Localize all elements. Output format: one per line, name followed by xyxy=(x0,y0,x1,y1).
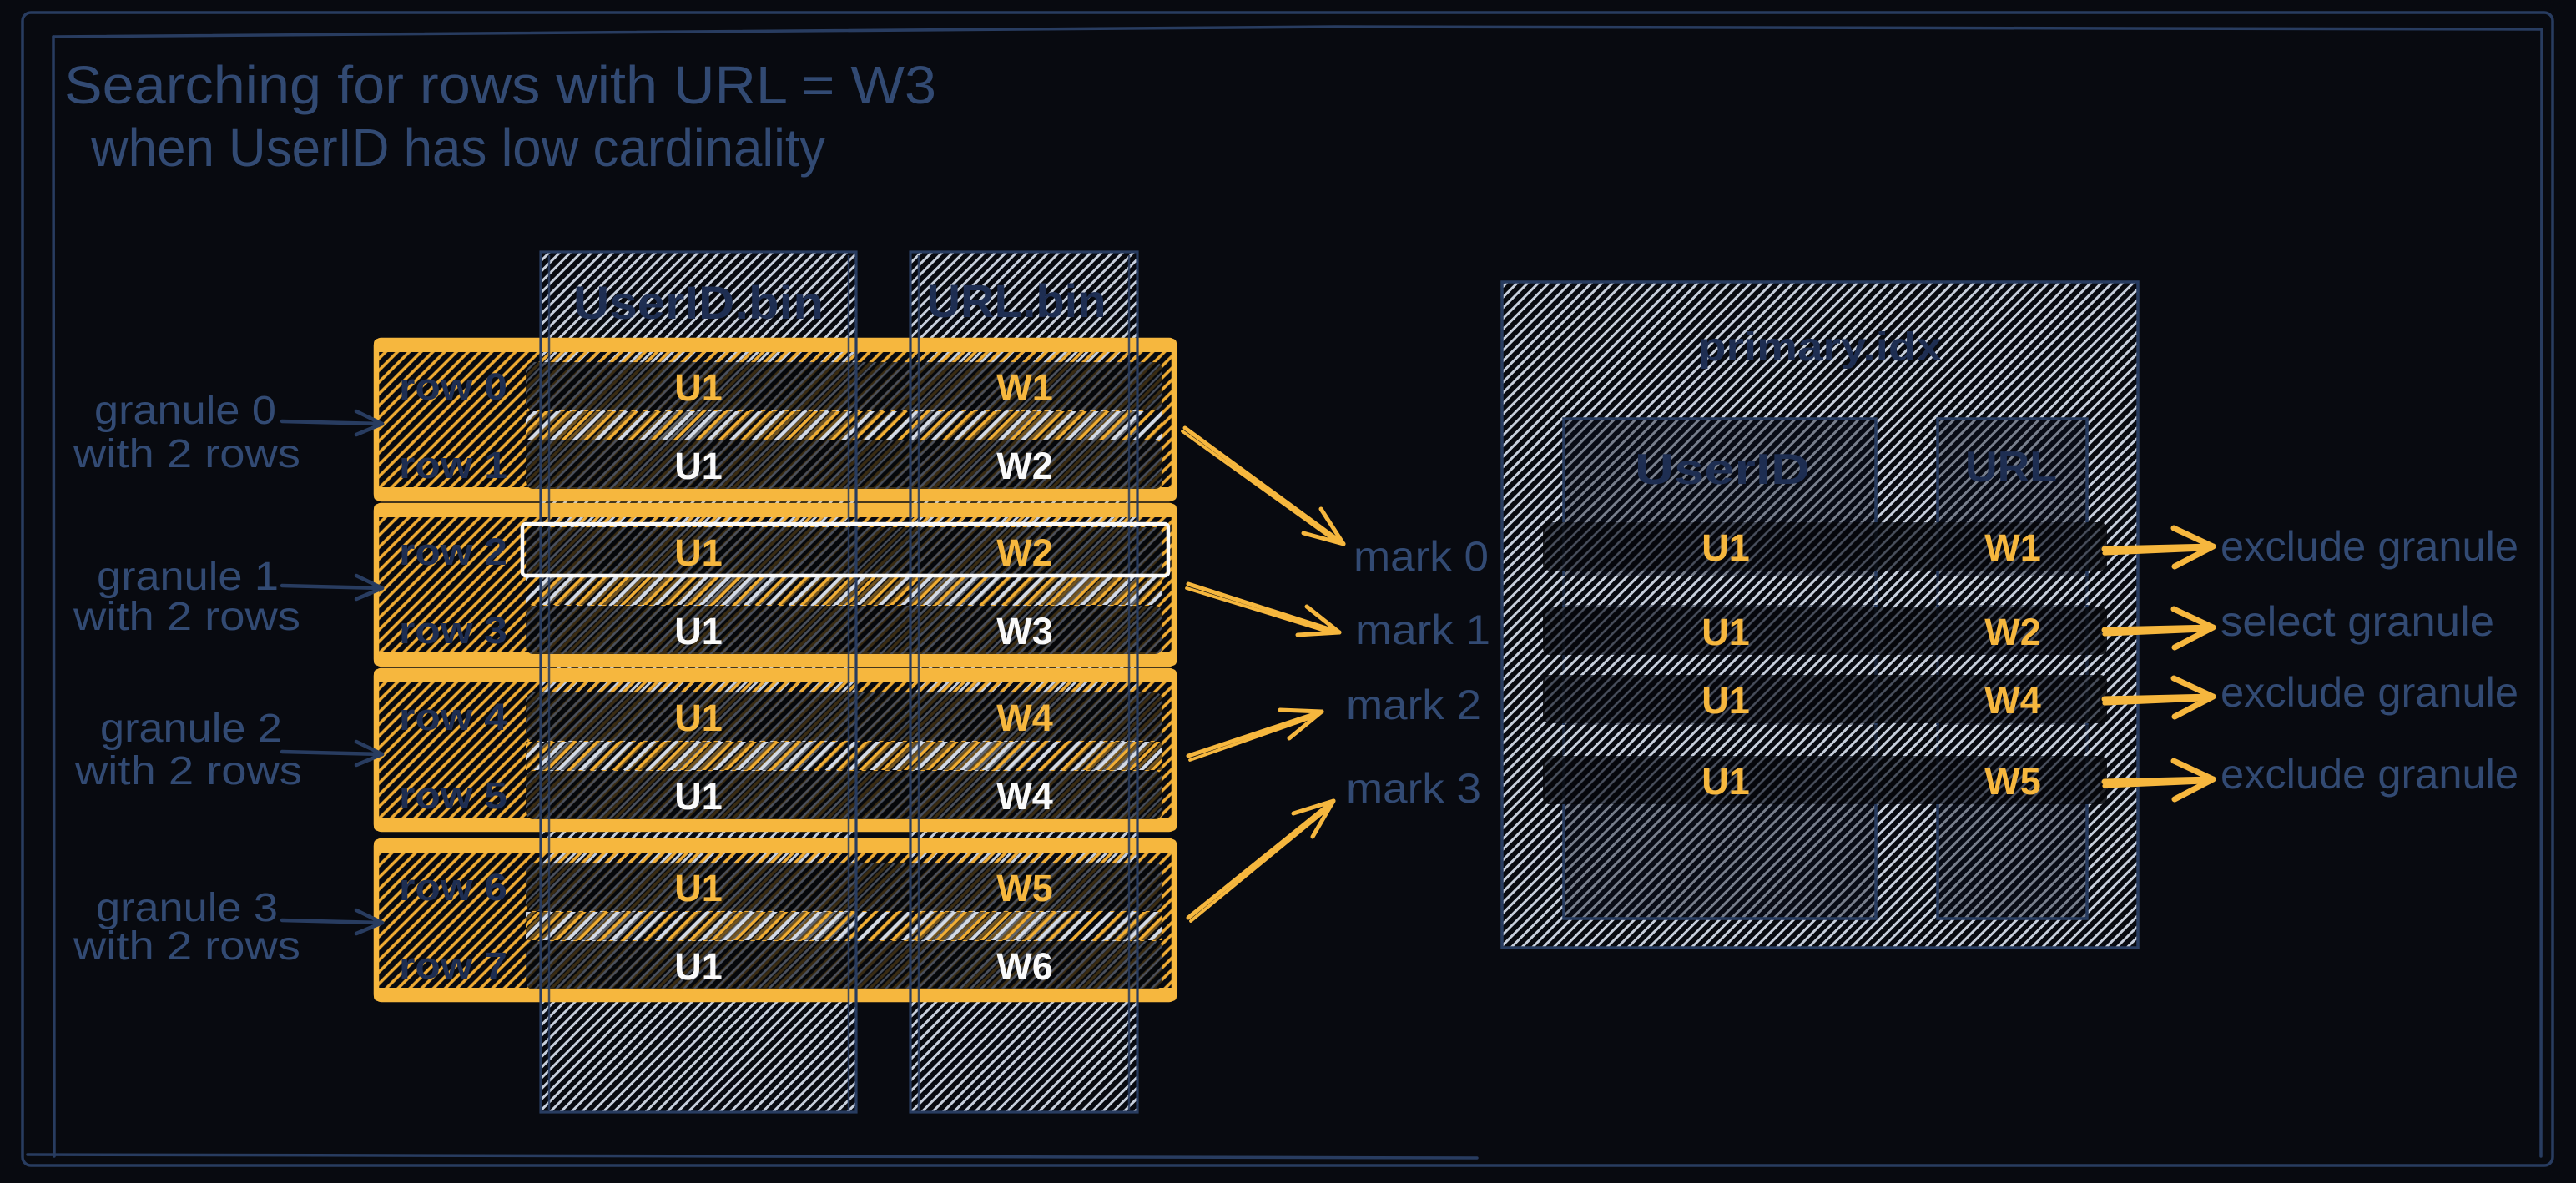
svg-text:UserID.bin: UserID.bin xyxy=(573,276,824,329)
svg-text:row 5: row 5 xyxy=(399,774,507,817)
svg-text:U1: U1 xyxy=(674,445,723,487)
svg-text:with 2 rows: with 2 rows xyxy=(73,432,300,476)
svg-text:U1: U1 xyxy=(1701,611,1750,653)
svg-text:W5: W5 xyxy=(996,867,1053,909)
svg-text:mark 0: mark 0 xyxy=(1354,533,1489,580)
svg-text:W2: W2 xyxy=(996,531,1053,574)
svg-text:W4: W4 xyxy=(1984,679,2041,722)
svg-text:mark 1: mark 1 xyxy=(1355,607,1490,653)
svg-text:U1: U1 xyxy=(674,697,723,739)
svg-text:U1: U1 xyxy=(674,610,723,652)
svg-text:exclude granule: exclude granule xyxy=(2221,669,2518,716)
svg-text:row 7: row 7 xyxy=(399,944,507,987)
svg-text:with 2 rows: with 2 rows xyxy=(74,749,302,793)
svg-text:row 0: row 0 xyxy=(399,365,507,408)
svg-text:row 6: row 6 xyxy=(399,866,507,909)
svg-text:W2: W2 xyxy=(996,445,1053,487)
svg-text:primary.idx: primary.idx xyxy=(1698,325,1942,370)
svg-text:U1: U1 xyxy=(674,366,723,409)
svg-text:W3: W3 xyxy=(996,610,1053,652)
svg-text:granule 1: granule 1 xyxy=(97,555,279,599)
svg-text:U1: U1 xyxy=(1701,526,1750,569)
svg-text:row 1: row 1 xyxy=(399,444,507,486)
svg-text:row 3: row 3 xyxy=(399,609,507,652)
svg-text:row 2: row 2 xyxy=(399,531,507,573)
svg-text:select granule: select granule xyxy=(2221,598,2494,645)
svg-text:U1: U1 xyxy=(674,775,723,818)
svg-text:W2: W2 xyxy=(1984,611,2041,653)
svg-text:URL: URL xyxy=(1965,443,2057,491)
svg-text:exclude granule: exclude granule xyxy=(2221,523,2518,570)
svg-text:U1: U1 xyxy=(1701,760,1750,803)
svg-text:U1: U1 xyxy=(674,867,723,909)
svg-text:with 2 rows: with 2 rows xyxy=(73,924,300,969)
svg-text:W5: W5 xyxy=(1984,760,2041,803)
svg-text:mark 3: mark 3 xyxy=(1346,765,1481,812)
svg-text:Searching for rows with URL =: Searching for rows with URL = W3 xyxy=(64,55,936,115)
svg-text:U1: U1 xyxy=(674,945,723,988)
svg-text:W4: W4 xyxy=(996,775,1053,818)
svg-text:when UserID has low cardinalit: when UserID has low cardinality xyxy=(90,118,825,178)
svg-text:W6: W6 xyxy=(996,945,1053,988)
svg-text:UserID: UserID xyxy=(1635,446,1810,494)
svg-text:granule 2: granule 2 xyxy=(100,707,282,751)
svg-text:row 4: row 4 xyxy=(399,696,507,738)
svg-text:mark 2: mark 2 xyxy=(1346,682,1481,728)
svg-text:W4: W4 xyxy=(996,697,1053,739)
svg-text:with 2 rows: with 2 rows xyxy=(73,595,300,639)
svg-text:granule 0: granule 0 xyxy=(94,389,276,433)
svg-text:U1: U1 xyxy=(1701,679,1750,722)
svg-text:W1: W1 xyxy=(996,366,1053,409)
svg-text:URL.bin: URL.bin xyxy=(927,274,1107,327)
svg-text:U1: U1 xyxy=(674,531,723,574)
svg-text:exclude granule: exclude granule xyxy=(2221,751,2518,798)
svg-text:W1: W1 xyxy=(1984,526,2041,569)
